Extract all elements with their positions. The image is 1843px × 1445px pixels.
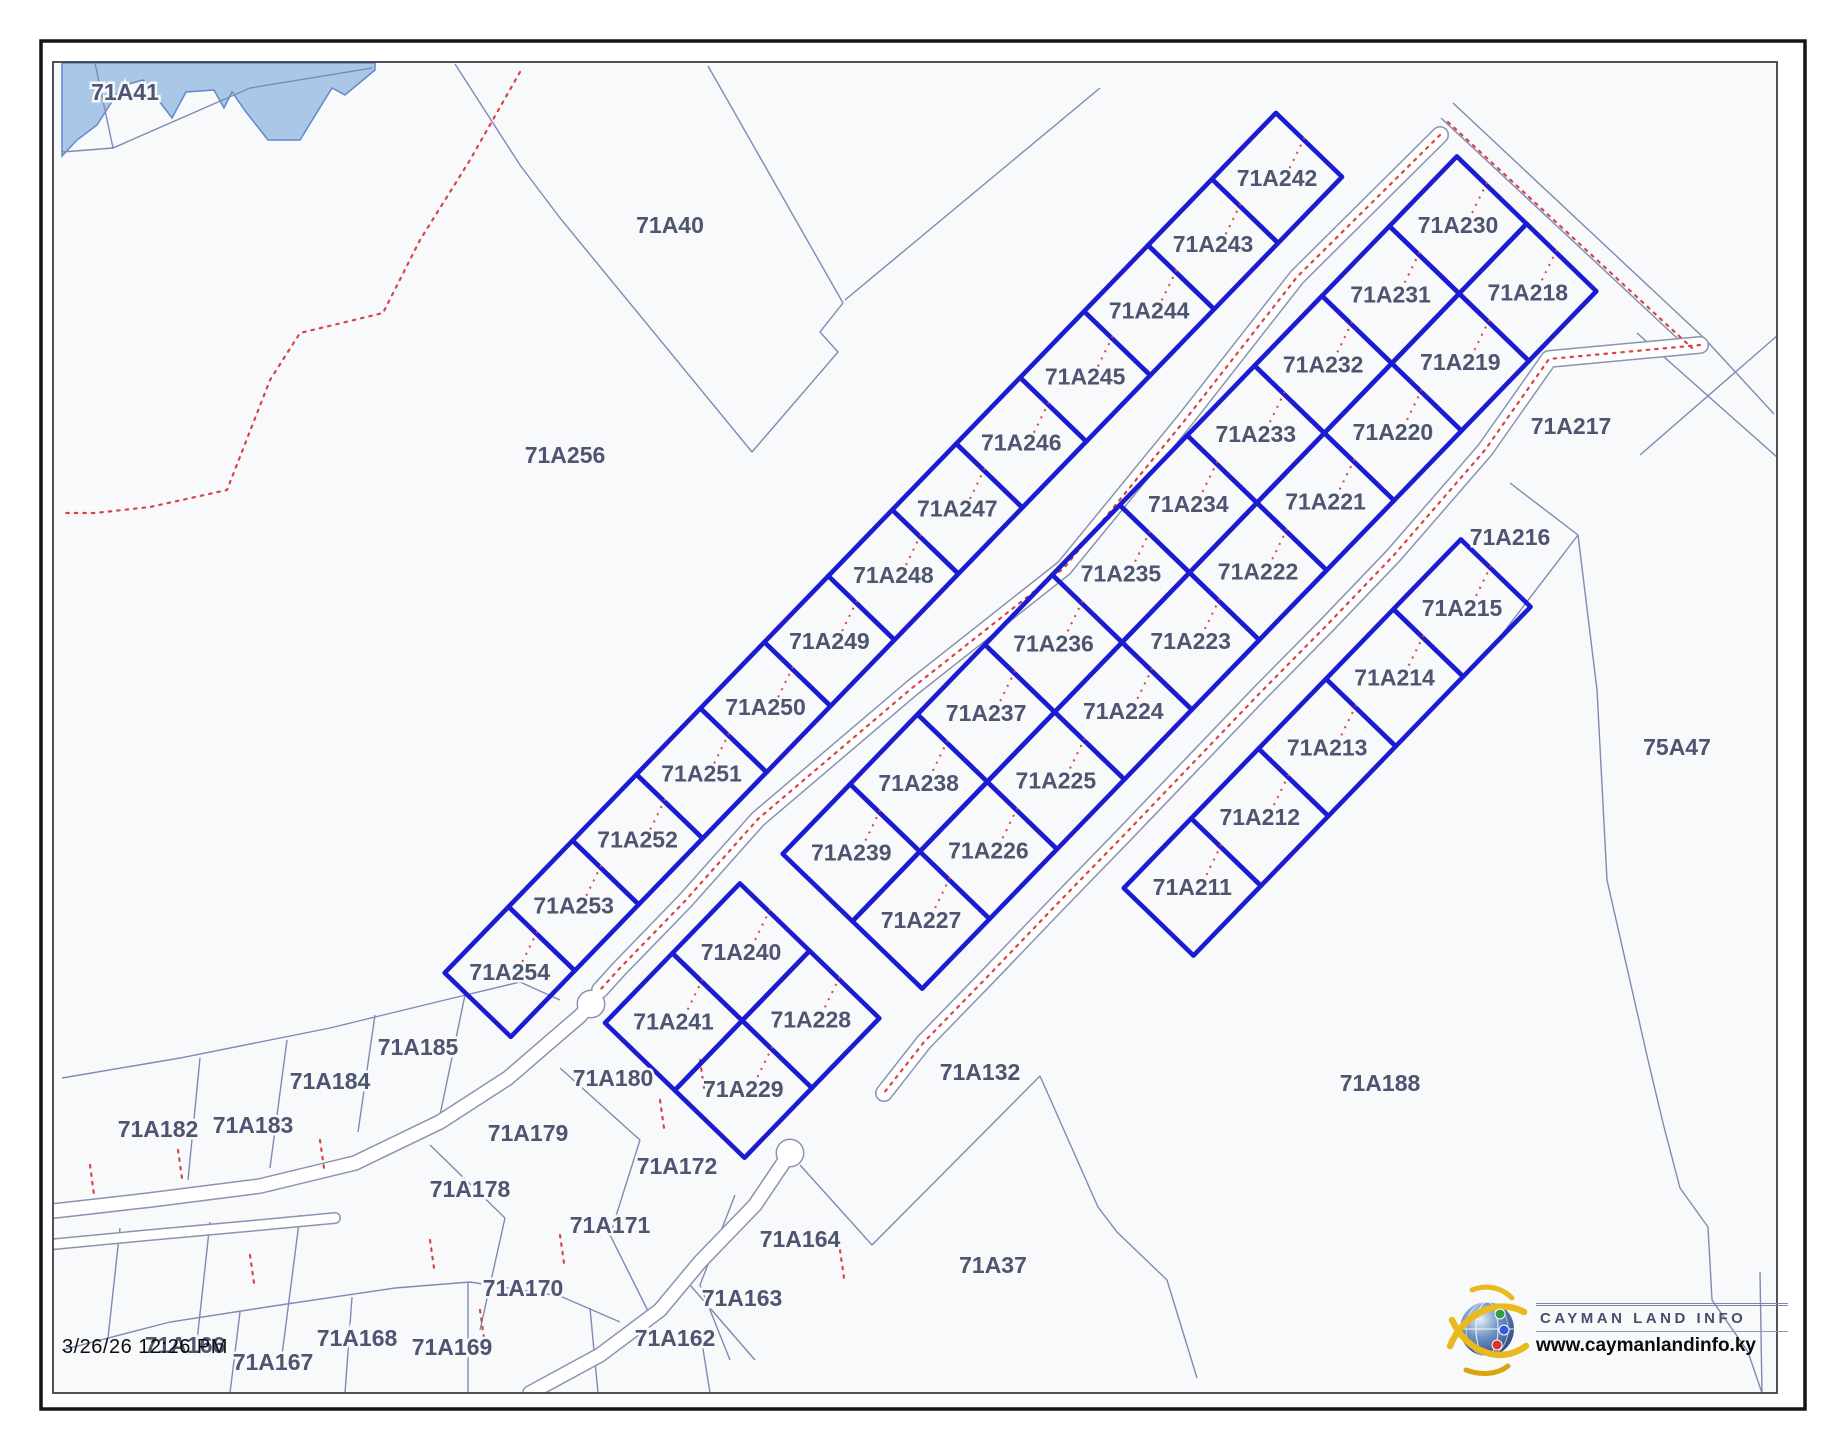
parcel-label-71A242: 71A242 [1237, 165, 1318, 191]
parcel-label-71A222: 71A222 [1218, 558, 1299, 584]
parcel-label-71A220: 71A220 [1353, 419, 1434, 445]
parcel-label-71A247: 71A247 [917, 496, 998, 522]
parcel-label-71A215: 71A215 [1422, 595, 1503, 621]
parcel-label-71A245: 71A245 [1045, 363, 1126, 389]
parcel-label-71A168: 71A168 [317, 1325, 398, 1351]
logo-text-block: CAYMAN LAND INFO www.caymanlandinfo.ky [1536, 1303, 1788, 1357]
parcel-label-71A167: 71A167 [233, 1349, 314, 1375]
parcel-label-71A170: 71A170 [483, 1275, 564, 1301]
parcel-label-71A178: 71A178 [430, 1176, 511, 1202]
parcel-label-71A238: 71A238 [878, 770, 959, 796]
parcel-label-71A237: 71A237 [946, 700, 1027, 726]
parcel-label-71A249: 71A249 [789, 628, 870, 654]
parcel-label-71A182: 71A182 [118, 1116, 199, 1142]
parcel-label-71A218: 71A218 [1487, 279, 1568, 305]
parcel-label-71A214: 71A214 [1354, 665, 1435, 691]
parcel-label-71A234: 71A234 [1148, 491, 1229, 517]
parcel-label-71A169: 71A169 [412, 1334, 493, 1360]
parcel-label-71A252: 71A252 [597, 826, 678, 852]
parcel-label-71A233: 71A233 [1215, 421, 1296, 447]
parcel-label-71A40: 71A40 [636, 212, 704, 238]
parcel-label-71A211: 71A211 [1153, 874, 1233, 900]
parcel-label-71A227: 71A227 [881, 907, 962, 933]
parcel-label-71A185: 71A185 [378, 1034, 459, 1060]
parcel-label-71A253: 71A253 [533, 893, 614, 919]
parcel-label-71A179: 71A179 [488, 1120, 569, 1146]
parcel-label-71A230: 71A230 [1418, 212, 1499, 238]
parcel-label-71A250: 71A250 [725, 694, 806, 720]
parcel-label-71A188: 71A188 [1340, 1070, 1421, 1096]
parcel-label-71A225: 71A225 [1016, 768, 1097, 794]
parcel-label-71A41: 71A41 [91, 79, 159, 105]
map-page: 71A24271A24371A24471A24571A24671A24771A2… [0, 0, 1843, 1445]
parcel-label-71A246: 71A246 [981, 430, 1062, 456]
parcel-label-71A228: 71A228 [770, 1006, 851, 1032]
parcel-label-75A47: 75A47 [1643, 734, 1711, 760]
parcel-label-71A217: 71A217 [1531, 413, 1612, 439]
parcel-label-71A213: 71A213 [1287, 734, 1368, 760]
parcel-label-71A229: 71A229 [703, 1076, 784, 1102]
cayman-land-info-logo: CAYMAN LAND INFO www.caymanlandinfo.ky [1444, 1282, 1788, 1378]
map-content: 71A24271A24371A24471A24571A24671A24771A2… [45, 62, 1778, 1393]
parcel-label-71A37: 71A37 [959, 1252, 1027, 1278]
parcel-label-71A235: 71A235 [1081, 561, 1162, 587]
parcel-label-71A212: 71A212 [1219, 804, 1300, 830]
parcel-label-71A239: 71A239 [811, 840, 892, 866]
parcel-label-71A219: 71A219 [1420, 349, 1501, 375]
parcel-label-71A256: 71A256 [525, 442, 606, 468]
parcel-label-71A244: 71A244 [1109, 297, 1190, 323]
cadastral-map: 71A24271A24371A24471A24571A24671A24771A2… [0, 0, 1843, 1445]
parcel-label-71A216: 71A216 [1470, 524, 1551, 550]
parcel-label-71A180: 71A180 [573, 1065, 654, 1091]
parcel-label-71A231: 71A231 [1350, 282, 1431, 308]
parcel-label-71A254: 71A254 [469, 959, 550, 985]
parcel-label-71A251: 71A251 [661, 760, 742, 786]
parcel-label-71A162: 71A162 [635, 1325, 716, 1351]
parcel-label-71A163: 71A163 [702, 1285, 783, 1311]
parcel-label-71A241: 71A241 [633, 1009, 714, 1035]
parcel-label-71A164: 71A164 [760, 1226, 841, 1252]
parcel-label-71A171: 71A171 [570, 1212, 651, 1238]
parcel-label-71A226: 71A226 [948, 837, 1029, 863]
parcel-label-71A243: 71A243 [1173, 231, 1254, 257]
parcel-label-71A183: 71A183 [213, 1112, 294, 1138]
parcel-label-71A240: 71A240 [701, 939, 782, 965]
logo-url: www.caymanlandinfo.ky [1536, 1332, 1788, 1357]
parcel-label-71A236: 71A236 [1013, 630, 1094, 656]
parcel-label-71A132: 71A132 [940, 1059, 1021, 1085]
parcel-label-71A184: 71A184 [290, 1068, 371, 1094]
parcel-label-71A232: 71A232 [1283, 351, 1364, 377]
parcel-label-71A224: 71A224 [1083, 698, 1164, 724]
globe-icon [1444, 1282, 1532, 1378]
parcel-label-71A248: 71A248 [853, 562, 934, 588]
timestamp: 3/26/26 12:26 PM [62, 1336, 228, 1359]
parcel-label-71A221: 71A221 [1285, 489, 1366, 515]
parcel-label-71A172: 71A172 [637, 1153, 718, 1179]
logo-brand: CAYMAN LAND INFO [1536, 1303, 1788, 1332]
parcel-label-71A223: 71A223 [1150, 628, 1231, 654]
